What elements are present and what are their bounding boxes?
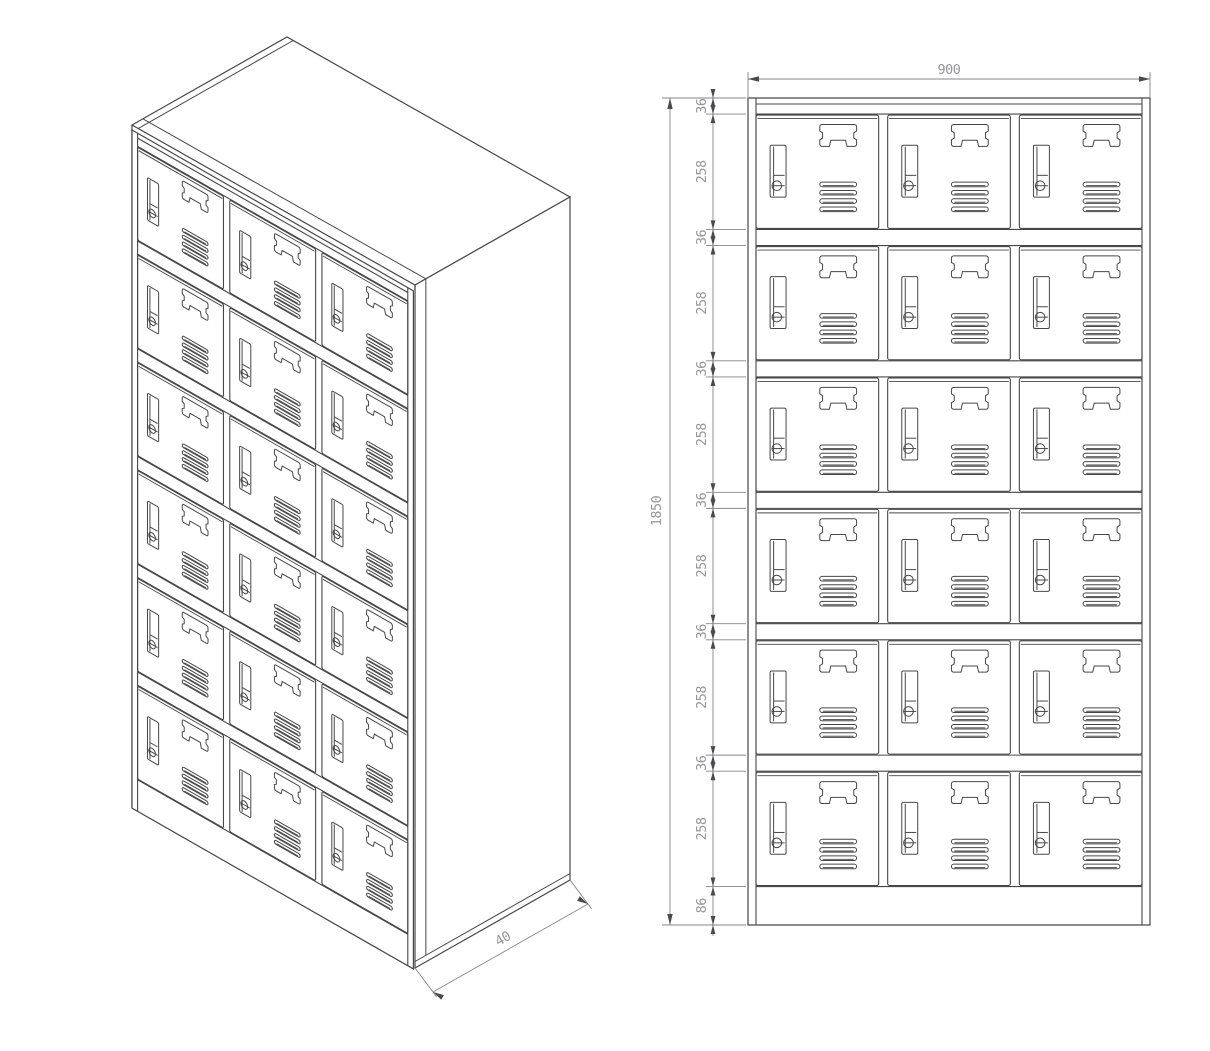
extension-line <box>415 968 437 997</box>
cabinet-side-face <box>415 197 570 968</box>
locker-technical-drawing: 40 900 1850 3625836258362583625836258362… <box>0 0 1210 1051</box>
segment-dimension-label: 258 <box>694 686 710 709</box>
dimension-chain: 36258362583625836258362583625886 <box>694 89 746 936</box>
dimension-arrow <box>711 925 716 934</box>
dimension-arrow <box>711 237 716 246</box>
dimension-arrow <box>711 746 716 755</box>
dimension-height <box>662 98 746 925</box>
front-elevation-view: 900 1850 3625836258362583625836258362588… <box>649 62 1150 936</box>
extension-line <box>570 880 592 909</box>
dimension-arrow <box>711 368 716 377</box>
segment-dimension-label: 36 <box>694 98 710 114</box>
dimension-arrow <box>748 76 759 81</box>
segment-dimension-label: 258 <box>694 423 710 446</box>
dimension-arrow <box>711 89 716 98</box>
front-face <box>748 98 1150 925</box>
dimension-arrow <box>1139 76 1150 81</box>
dimension-arrow <box>711 615 716 624</box>
drawing-sheet: 40 900 1850 3625836258362583625836258362… <box>0 0 1210 1051</box>
segment-dimension-label: 86 <box>694 898 710 914</box>
dimension-arrow <box>711 499 716 508</box>
dimension-arrow <box>711 887 716 896</box>
dimension-arrow <box>711 114 716 123</box>
segment-dimension-label: 36 <box>694 624 710 640</box>
segment-dimension-label: 258 <box>694 817 710 840</box>
dimension-arrow <box>711 220 716 229</box>
dimension-arrow <box>433 992 444 1000</box>
dimension-arrow <box>711 762 716 771</box>
dimension-arrow <box>711 105 716 114</box>
dimension-arrow <box>711 916 716 925</box>
dimension-arrow <box>711 377 716 386</box>
dimension-arrow <box>711 508 716 517</box>
isometric-view: 40 <box>132 37 592 1000</box>
dimension-arrow <box>711 640 716 649</box>
depth-dimension-label: 40 <box>492 928 513 950</box>
segment-dimension-label: 36 <box>694 361 710 377</box>
segment-dimension-label: 258 <box>694 291 710 314</box>
dimension-arrow <box>711 352 716 361</box>
dimension-arrow <box>711 483 716 492</box>
dimension-arrow <box>711 246 716 255</box>
segment-dimension-label: 258 <box>694 160 710 183</box>
dimension-arrow <box>667 914 672 925</box>
height-dimension-label: 1850 <box>649 495 665 526</box>
segment-dimension-label: 258 <box>694 554 710 577</box>
dimension-arrow <box>711 771 716 780</box>
dimension-arrow <box>667 98 672 109</box>
segment-dimension-label: 36 <box>694 755 710 771</box>
dimension-arrow <box>711 631 716 640</box>
dimension-arrow <box>711 878 716 887</box>
width-dimension-label: 900 <box>938 62 961 78</box>
segment-dimension-label: 36 <box>694 492 710 508</box>
segment-dimension-label: 36 <box>694 229 710 245</box>
